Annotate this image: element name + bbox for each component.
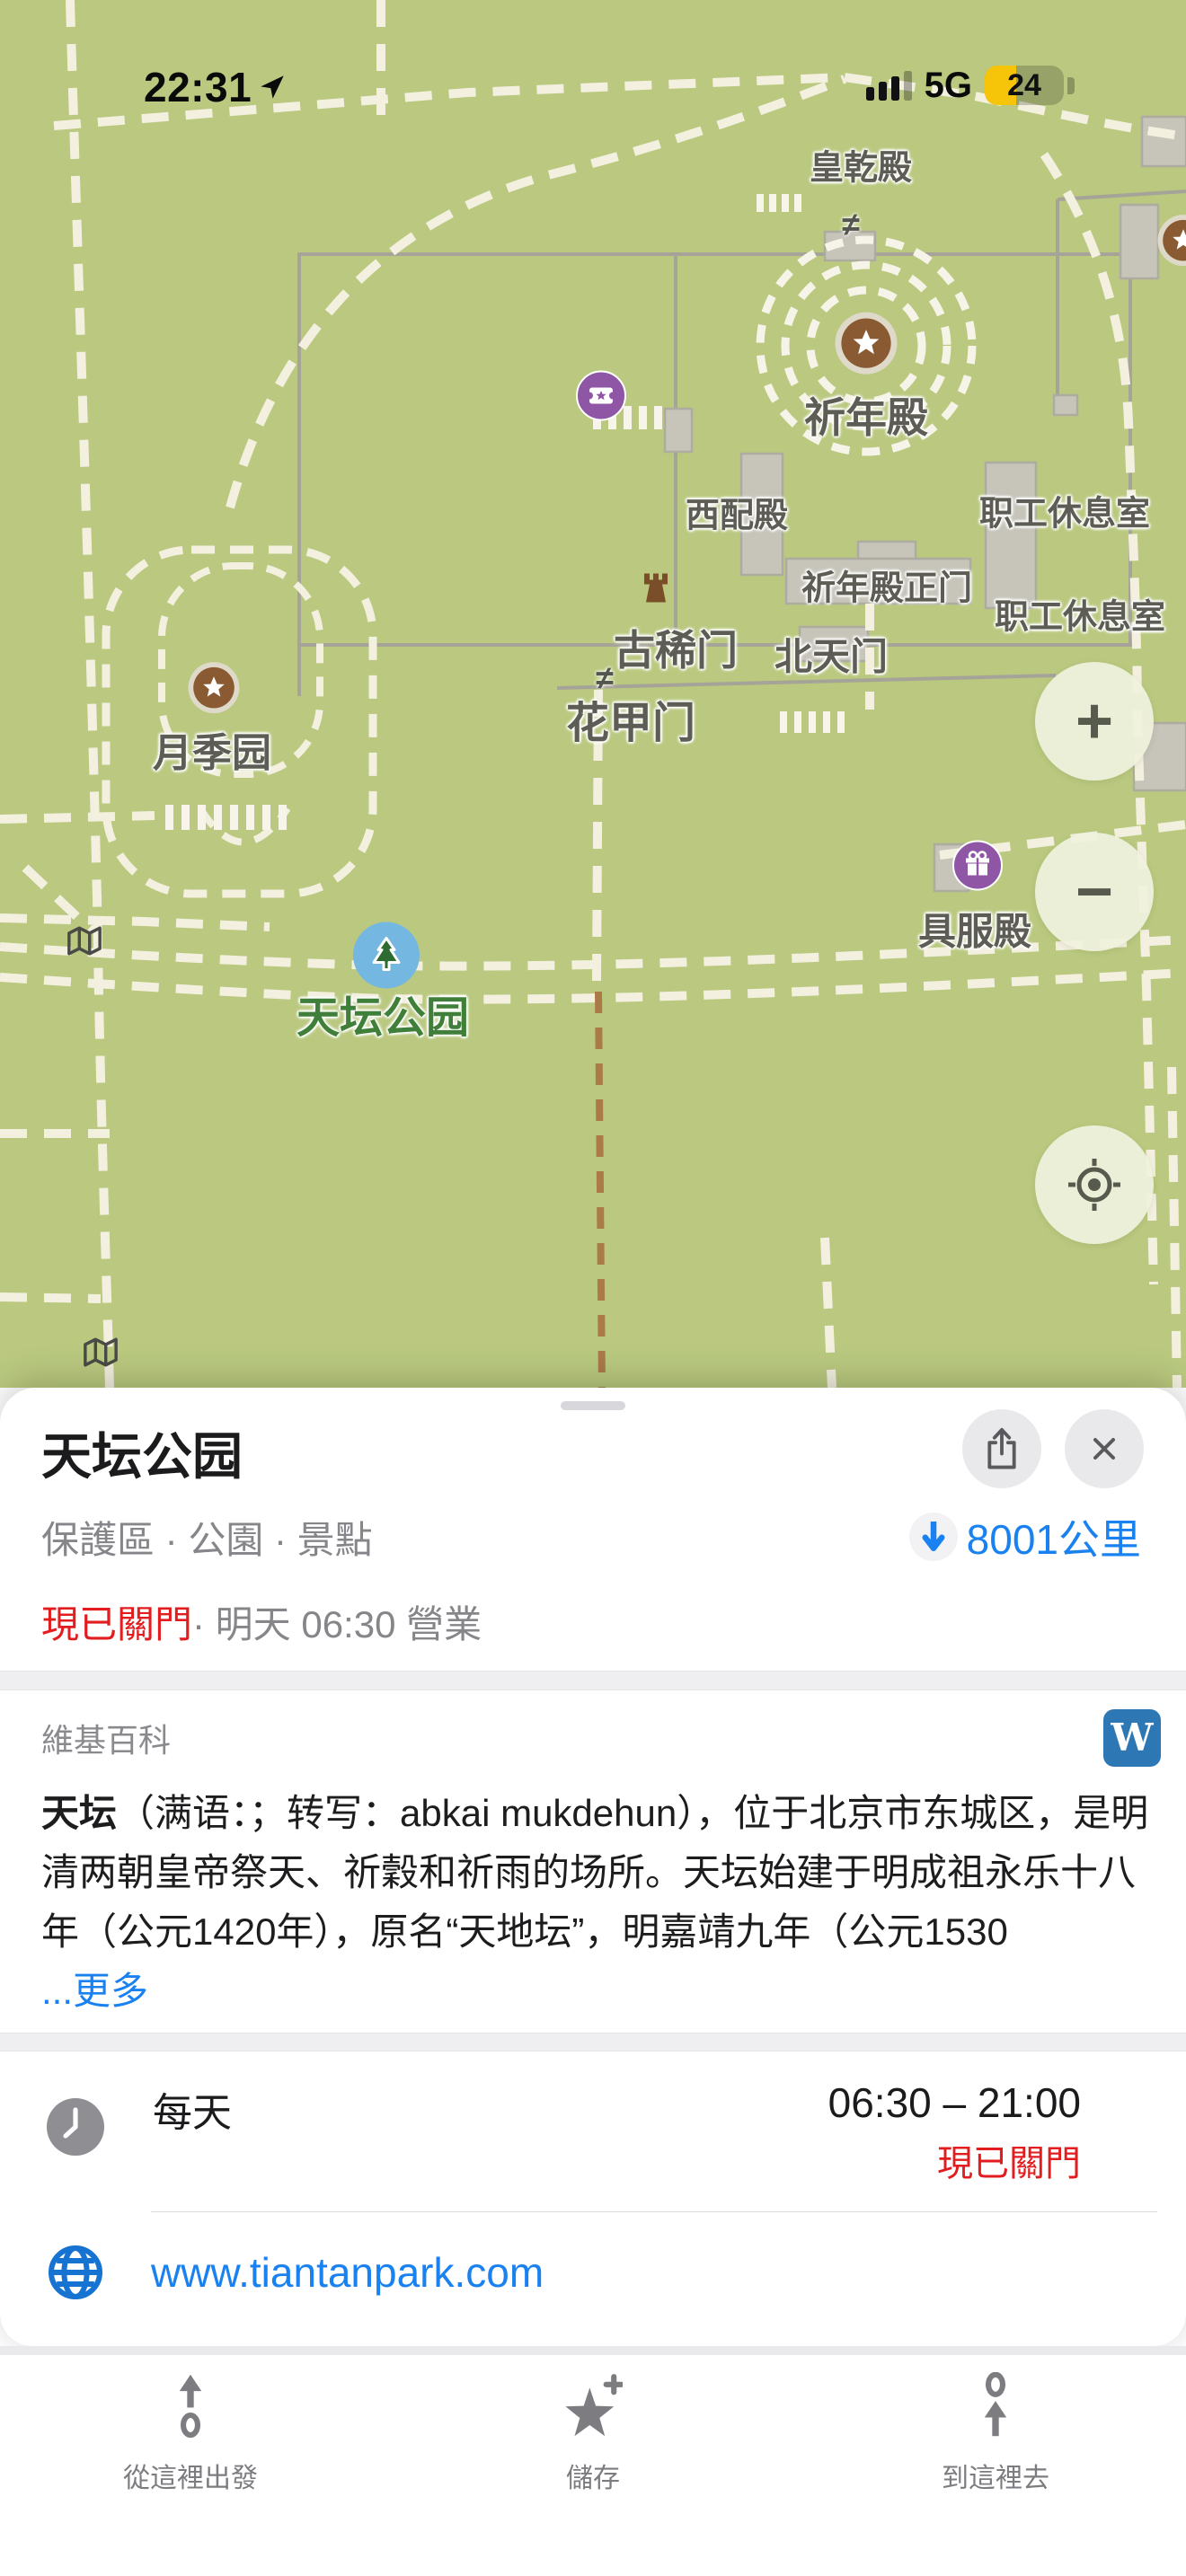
hours-closed-status: 現已關門 — [937, 2134, 1081, 2186]
status-time: 22:31 — [144, 63, 288, 111]
battery-cap — [1067, 77, 1075, 94]
wikipedia-icon[interactable]: W — [1103, 1709, 1161, 1767]
hours-day-label: 每天 — [153, 2080, 232, 2138]
place-card: 天坛公园 保護區 · 公園 · 景點 — [0, 1388, 1186, 2346]
zoom-out-button[interactable]: − — [1035, 833, 1154, 951]
wiki-lead: 天坛 — [41, 1792, 117, 1834]
distance-text: 8001公里 — [967, 1507, 1141, 1566]
park-tree-marker[interactable] — [350, 919, 423, 997]
section-separator — [0, 1671, 1186, 1690]
wikipedia-extract[interactable]: 天坛（满语：；转写：abkai mukdehun），位于北京市东城区，是明清两朝… — [41, 1784, 1155, 2021]
close-icon — [1086, 1431, 1122, 1467]
drag-handle[interactable] — [561, 1401, 625, 1410]
map-label: 皇乾殿 — [810, 140, 912, 190]
opening-hours-row[interactable]: 每天 06:30 – 21:00 現已關門 — [0, 2051, 1186, 2211]
network-type: 5G — [925, 66, 972, 106]
locate-button[interactable] — [1035, 1125, 1154, 1244]
crosswalk — [780, 711, 845, 733]
minus-icon: − — [1075, 860, 1113, 924]
share-button[interactable] — [962, 1409, 1041, 1488]
zoom-in-button[interactable]: + — [1035, 662, 1154, 781]
locate-icon — [1065, 1155, 1124, 1214]
directions-to-here-button[interactable]: 到這裡去 — [861, 2368, 1130, 2520]
directions-from-here-button[interactable]: 從這裡出發 — [56, 2368, 325, 2520]
card-gap — [0, 2346, 1186, 2355]
save-star-icon — [563, 2368, 623, 2443]
website-link[interactable]: www.tiantanpark.com — [151, 2248, 544, 2297]
signal-bars-icon — [866, 70, 912, 101]
direction-down-icon — [909, 1513, 958, 1561]
map-label: 职工休息室 — [995, 589, 1165, 639]
closed-status: 現已關門 — [41, 1594, 192, 1649]
plus-icon: + — [1075, 689, 1113, 754]
category-line: 保護區 · 公園 · 景點 — [41, 1510, 373, 1565]
screen: 皇乾殿祈年殿西配殿职工休息室祈年殿正门职工休息室古稀门北天门花甲门月季园具服殿天… — [0, 0, 1186, 2576]
map-label: 具服殿 — [918, 902, 1031, 957]
trail-map-icon — [83, 1335, 119, 1375]
hours-time: 06:30 – 21:00 — [828, 2078, 1081, 2127]
map-label: 花甲门 — [566, 687, 695, 750]
map-canvas[interactable]: 皇乾殿祈年殿西配殿职工休息室祈年殿正门职工休息室古稀门北天门花甲门月季园具服殿天… — [0, 0, 1186, 1388]
trail-map-icon — [66, 923, 102, 964]
toolbar-label: 到這裡去 — [942, 2456, 1049, 2495]
map-label: 古稀门 — [614, 618, 738, 677]
save-button[interactable]: 儲存 — [458, 2368, 728, 2520]
map-label: 月季园 — [153, 720, 271, 778]
map-label: 祈年殿正门 — [801, 560, 972, 610]
ticket-office-marker[interactable] — [575, 370, 627, 427]
toolbar-label: 從這裡出發 — [123, 2456, 258, 2495]
edge-star-marker[interactable] — [1151, 208, 1186, 278]
wiki-text: （满语：；转写：abkai mukdehun），位于北京市东城区，是明清两朝皇帝… — [41, 1792, 1148, 1953]
neq-symbol: ≠ — [842, 206, 860, 243]
map-label: 西配殿 — [686, 488, 788, 537]
route-to-icon — [976, 2368, 1015, 2443]
website-row[interactable]: www.tiantanpark.com — [0, 2212, 1186, 2346]
map-label: 职工休息室 — [979, 486, 1150, 535]
yuejiyuan-star-marker[interactable] — [181, 656, 246, 725]
crosswalk — [757, 194, 801, 212]
distance-badge: 8001公里 — [909, 1507, 1141, 1566]
close-button[interactable] — [1065, 1409, 1144, 1488]
tower-marker[interactable] — [631, 564, 681, 619]
action-toolbar: 從這裡出發 儲存 — [0, 2355, 1186, 2576]
clock-icon — [47, 2098, 104, 2160]
crosswalk — [165, 805, 287, 830]
route-from-icon — [171, 2368, 210, 2443]
qiniandian-star-marker[interactable] — [827, 304, 905, 387]
globe-icon — [47, 2244, 104, 2306]
opens-tomorrow-text: · 明天 06:30 營業 — [192, 1594, 482, 1649]
more-link[interactable]: ...更多 — [41, 1970, 148, 2012]
neq-symbol: ≠ — [596, 659, 614, 697]
section-separator — [0, 2033, 1186, 2051]
map-label: 祈年殿 — [804, 385, 928, 445]
location-arrow-icon — [257, 72, 288, 102]
battery-percent: 24 — [985, 66, 1064, 105]
page-title: 天坛公园 — [41, 1416, 243, 1489]
battery-icon: 24 — [985, 66, 1064, 105]
wikipedia-header: 維基百科 — [41, 1715, 171, 1761]
toolbar-label: 儲存 — [566, 2456, 620, 2495]
gift-shop-marker[interactable] — [951, 840, 1004, 896]
status-bar: 22:31 5G 24 — [0, 0, 1186, 117]
share-icon — [981, 1425, 1022, 1472]
open-status-line: 現已關門 · 明天 06:30 營業 — [41, 1598, 482, 1645]
map-label: 北天门 — [774, 627, 888, 682]
